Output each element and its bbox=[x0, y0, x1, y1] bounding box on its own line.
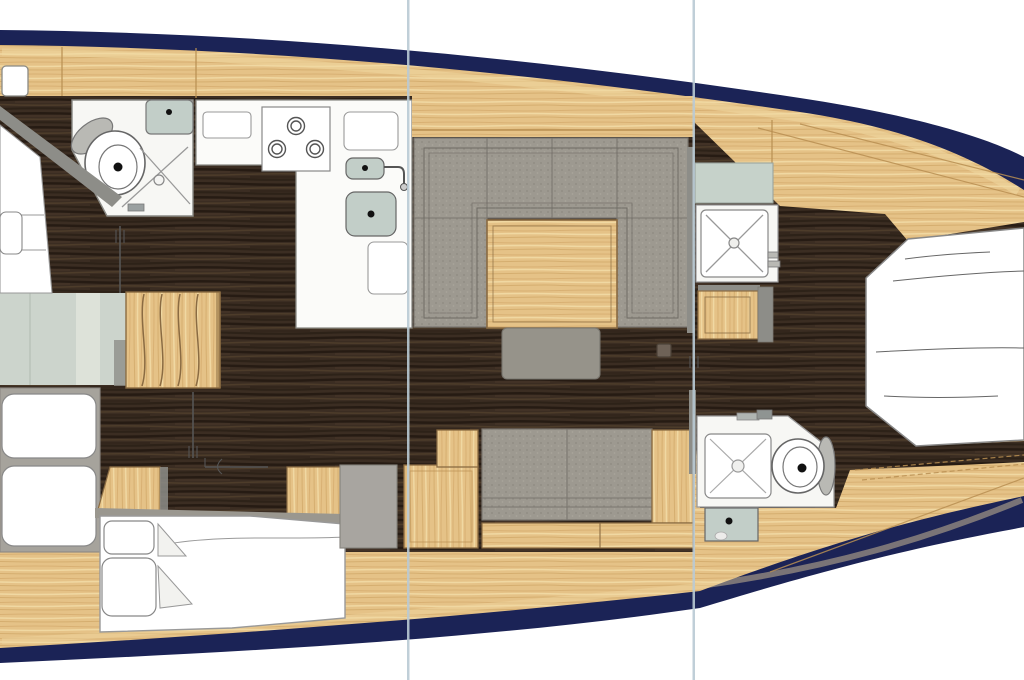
shower-drain bbox=[154, 175, 164, 185]
settee-base-step bbox=[482, 523, 693, 548]
shower-drain bbox=[729, 238, 739, 248]
sink-drain bbox=[166, 109, 172, 115]
salon-table bbox=[487, 220, 617, 328]
berth-cushion-small bbox=[0, 212, 22, 254]
shower-drain bbox=[732, 460, 744, 472]
seat-gray-top bbox=[698, 285, 760, 291]
faucet-bar bbox=[737, 413, 759, 420]
locker-gray-edge bbox=[160, 467, 168, 515]
wall-fixture-box bbox=[2, 66, 28, 96]
steps-shadow bbox=[216, 292, 221, 388]
passage-floor bbox=[0, 293, 128, 385]
sink bbox=[146, 100, 193, 134]
floorplan-canvas bbox=[0, 0, 1024, 680]
berth-pillow bbox=[2, 394, 96, 458]
faucet-block bbox=[757, 410, 772, 419]
sink-soap bbox=[715, 532, 727, 540]
floorplan-page bbox=[0, 0, 1024, 680]
sage-counter bbox=[695, 163, 773, 203]
separator-line bbox=[407, 0, 410, 680]
seat-gray-side bbox=[758, 287, 773, 342]
toilet-drain bbox=[798, 464, 807, 473]
shower-door-handle bbox=[768, 252, 778, 258]
berth-pillow bbox=[2, 466, 96, 546]
passage-floor-highlight bbox=[76, 293, 100, 385]
shower-step bbox=[128, 204, 144, 211]
bed-pillow bbox=[104, 521, 154, 554]
counter-item bbox=[344, 112, 398, 150]
wood-armrest bbox=[652, 430, 693, 523]
bed-pillow bbox=[102, 558, 156, 616]
salon-top-cabinet bbox=[412, 96, 694, 137]
sink-drain bbox=[726, 518, 733, 525]
gray-cabinet bbox=[340, 465, 397, 548]
separator-line bbox=[693, 0, 696, 680]
bow-berth-right bbox=[866, 228, 1024, 446]
companionway-steps bbox=[126, 292, 220, 388]
stove bbox=[262, 107, 330, 171]
shower-door-handle bbox=[768, 261, 780, 267]
counter-item bbox=[203, 112, 251, 138]
wood-seat bbox=[698, 291, 758, 339]
steps-edge-gray bbox=[114, 340, 126, 386]
counter-item bbox=[368, 242, 408, 294]
faucet-base bbox=[401, 184, 408, 191]
wood-cabinet-small bbox=[437, 430, 478, 467]
instrument-box bbox=[657, 344, 671, 357]
basin-drain bbox=[362, 165, 368, 171]
ottoman bbox=[502, 328, 600, 379]
sink bbox=[705, 508, 758, 541]
toilet-drain bbox=[114, 163, 123, 172]
wood-cabinet bbox=[404, 465, 478, 548]
bow-berth-mattress bbox=[866, 228, 1024, 446]
basin-drain bbox=[368, 211, 375, 218]
